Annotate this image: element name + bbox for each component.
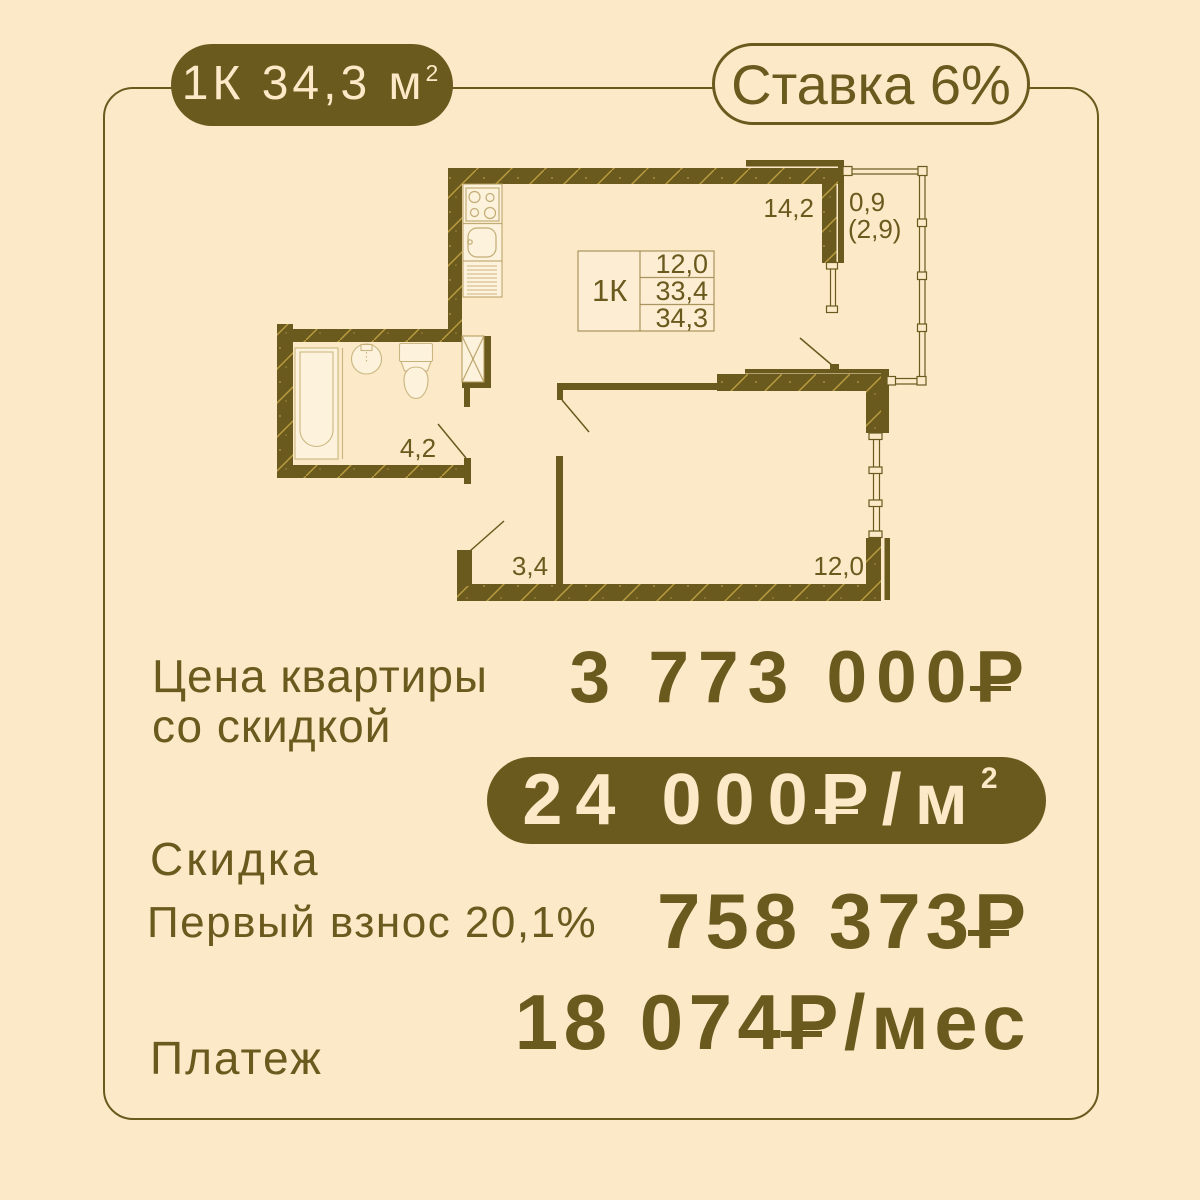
svg-text:34,3: 34,3 (655, 303, 708, 333)
svg-text:12,0: 12,0 (813, 551, 864, 581)
svg-text:12,0: 12,0 (655, 249, 708, 279)
svg-text:1К: 1К (592, 273, 627, 308)
svg-text:(2,9): (2,9) (848, 214, 901, 244)
svg-text:3,4: 3,4 (512, 551, 548, 581)
svg-text:4,2: 4,2 (400, 433, 436, 463)
svg-text:0,9: 0,9 (849, 187, 885, 217)
svg-text:33,4: 33,4 (655, 276, 708, 306)
svg-text:14,2: 14,2 (763, 193, 814, 223)
